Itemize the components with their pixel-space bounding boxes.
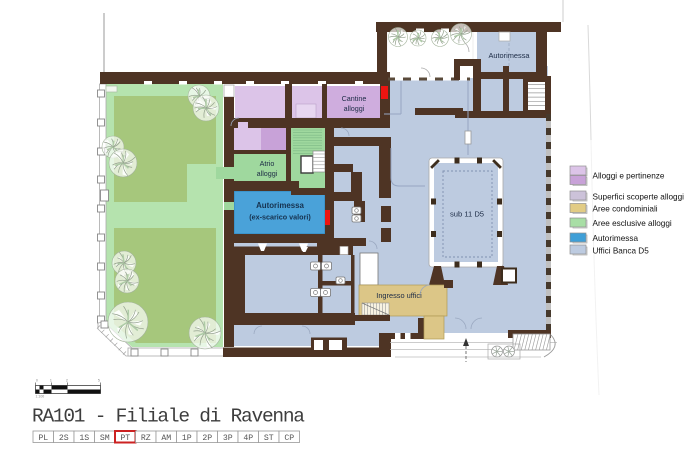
svg-text:2P: 2P: [202, 434, 212, 443]
svg-text:(ex-scarico valori): (ex-scarico valori): [249, 213, 311, 222]
svg-text:4P: 4P: [243, 434, 253, 443]
svg-text:Ingresso uffici: Ingresso uffici: [376, 291, 422, 300]
svg-text:Alloggi e pertinenze: Alloggi e pertinenze: [593, 172, 665, 181]
svg-text:alloggi: alloggi: [257, 169, 278, 178]
svg-text:Cantine: Cantine: [342, 94, 367, 103]
svg-text:AM: AM: [161, 434, 171, 443]
svg-text:1: 1: [50, 379, 52, 383]
svg-text:1P: 1P: [182, 434, 192, 443]
svg-text:1S: 1S: [79, 434, 89, 443]
svg-text:SM: SM: [100, 434, 110, 443]
svg-text:Autorimessa: Autorimessa: [488, 51, 530, 60]
svg-text:Superfici scoperte alloggi: Superfici scoperte alloggi: [593, 193, 685, 202]
svg-text:Uffici Banca D5: Uffici Banca D5: [593, 247, 650, 256]
svg-text:Atrio: Atrio: [260, 159, 275, 168]
svg-text:Autorimessa: Autorimessa: [256, 201, 304, 210]
svg-text:sub 11 D5: sub 11 D5: [450, 210, 484, 219]
svg-text:0: 0: [36, 379, 38, 383]
svg-text:5: 5: [98, 379, 100, 383]
svg-text:Aree condominiali: Aree condominiali: [593, 205, 658, 214]
svg-text:Aree esclusive alloggi: Aree esclusive alloggi: [593, 219, 672, 228]
svg-text:alloggi: alloggi: [344, 104, 365, 113]
svg-text:1:100: 1:100: [36, 395, 45, 399]
svg-text:PL: PL: [38, 434, 48, 443]
svg-text:2S: 2S: [59, 434, 69, 443]
svg-text:CP: CP: [284, 434, 294, 443]
svg-text:RA101 - Filiale di Ravenna: RA101 - Filiale di Ravenna: [32, 406, 305, 428]
svg-text:2: 2: [66, 379, 68, 383]
svg-text:ST: ST: [264, 434, 274, 443]
svg-text:RZ: RZ: [141, 434, 151, 443]
svg-text:PT: PT: [120, 434, 130, 443]
svg-text:3P: 3P: [223, 434, 233, 443]
svg-text:Autorimessa: Autorimessa: [593, 234, 639, 243]
